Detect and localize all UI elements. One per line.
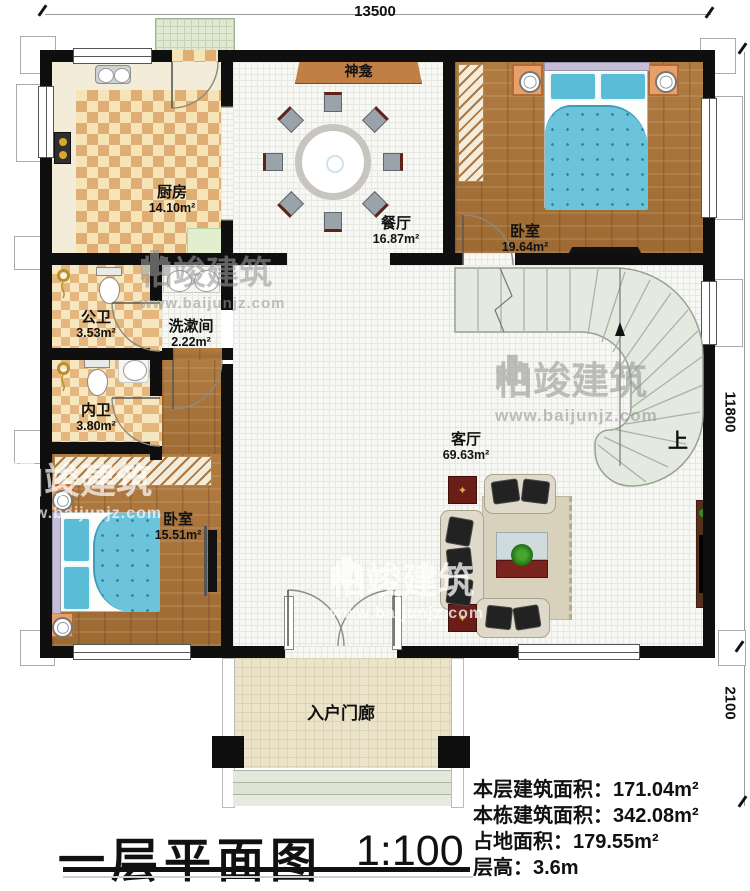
porch-column-strip	[451, 658, 464, 808]
stats-block: 本层建筑面积：171.04m² 本栋建筑面积：342.08m² 占地面积：179…	[473, 777, 699, 881]
kitchen-sink	[95, 65, 131, 84]
washbasin	[167, 270, 192, 292]
room-label-bedroom-top: 卧室19.64m²	[502, 223, 549, 255]
dimension-tick	[738, 795, 748, 807]
porch-step	[233, 794, 451, 806]
washbasin	[194, 270, 219, 292]
porch-door-opening	[285, 646, 397, 658]
shower-head	[57, 269, 70, 282]
chair	[263, 153, 283, 171]
porch-pillar	[438, 736, 470, 768]
dining-living-opening	[287, 253, 390, 265]
stairs-up-label: 上	[668, 431, 688, 454]
stat-line: 本栋建筑面积：342.08m²	[473, 803, 699, 829]
sofa-cushion	[491, 478, 521, 505]
exterior-ledge	[718, 630, 746, 666]
exterior-ledge	[14, 236, 42, 270]
nightstand	[648, 64, 679, 96]
shower-head	[57, 362, 70, 375]
shrine-label: 神龛	[345, 63, 373, 79]
room-label-kitchen: 厨房14.10m²	[149, 184, 196, 216]
sofa-cushion	[485, 605, 513, 631]
wall	[40, 442, 162, 454]
dining-table	[295, 124, 371, 200]
burner	[59, 151, 67, 159]
window	[518, 644, 640, 660]
lamp	[655, 71, 677, 93]
bath-door-opening	[150, 301, 162, 351]
blanket	[93, 513, 160, 612]
sofa-cushion	[445, 576, 474, 606]
window-sill	[715, 279, 743, 347]
lamp	[52, 617, 73, 638]
dimension-right-upper: 11800	[722, 392, 739, 433]
stat-line: 本层建筑面积：171.04m²	[473, 777, 699, 803]
pillow	[62, 565, 91, 611]
sofa-cushion	[512, 604, 541, 631]
toilet-tank	[84, 359, 110, 368]
sofa-cushion	[445, 516, 474, 547]
room-label-public-bath: 公卫3.53m²	[76, 309, 116, 341]
end-table: ✦	[448, 604, 477, 632]
bed	[52, 512, 158, 612]
dimension-top: 13500	[354, 3, 396, 20]
toilet-tank	[96, 267, 122, 276]
pillow	[549, 72, 597, 101]
wall	[221, 253, 233, 310]
sofa-cushion	[521, 478, 551, 504]
private-bath-sink	[118, 356, 149, 383]
exterior-ledge	[14, 430, 42, 464]
window	[38, 86, 54, 158]
door-jamb	[392, 596, 402, 650]
chair	[383, 153, 403, 171]
headboard	[544, 62, 650, 71]
pillow	[62, 517, 91, 563]
window	[701, 98, 717, 218]
washbasin	[123, 360, 147, 381]
wall	[443, 50, 455, 265]
plant	[511, 544, 533, 566]
stove	[54, 132, 71, 164]
sink-basin	[114, 68, 130, 83]
wardrobe	[54, 456, 212, 486]
pillow	[599, 72, 647, 101]
chair	[324, 92, 342, 112]
back-door-planter	[155, 18, 235, 54]
door-jamb	[284, 596, 294, 650]
corridor-floor	[162, 360, 221, 460]
headboard	[52, 512, 61, 614]
room-label-porch: 入户门廊	[307, 704, 375, 724]
bath-door-opening	[150, 396, 162, 446]
window	[73, 644, 191, 660]
dimension-tick	[738, 42, 748, 54]
dimension-right-lower: 2100	[722, 686, 739, 719]
wardrobe	[458, 64, 484, 182]
room-label-dining: 餐厅16.87m²	[373, 215, 420, 247]
nightstand	[512, 64, 543, 96]
washroom-counter	[163, 266, 220, 293]
stat-line: 层高：3.6m	[473, 855, 699, 881]
back-door-opening	[172, 50, 218, 62]
dimension-tick	[705, 6, 715, 18]
lamp	[52, 490, 73, 511]
wall	[221, 364, 233, 658]
sink-basin	[98, 68, 114, 83]
window	[73, 48, 152, 64]
kitchen-dining-opening	[221, 107, 233, 220]
window	[701, 281, 717, 345]
room-label-living: 客厅69.63m²	[443, 431, 490, 463]
burner	[59, 138, 67, 146]
porch-pillar	[212, 736, 244, 768]
tv	[208, 530, 217, 592]
blanket	[545, 105, 648, 210]
lamp	[519, 71, 541, 93]
stat-line: 占地面积：179.55m²	[473, 829, 699, 855]
kitchen-mat	[187, 228, 223, 255]
title-underline-light	[63, 876, 473, 878]
tv-stand	[204, 526, 207, 596]
room-label-private-bath: 内卫3.80m²	[76, 402, 116, 434]
chair	[324, 212, 342, 232]
dimension-line-right	[744, 52, 745, 806]
room-label-bedroom-bottom: 卧室15.51m²	[155, 511, 202, 543]
room-label-washroom: 洗漱间2.22m²	[168, 318, 213, 350]
floorplan-page: { "dimensions": { "top": "13500", "right…	[0, 0, 750, 890]
end-table: ✦	[448, 476, 477, 504]
sheet-title: 一层平面图	[58, 822, 323, 891]
sofa-cushion	[446, 547, 474, 576]
window-sill	[715, 96, 743, 220]
bed	[544, 62, 648, 208]
title-underline	[63, 867, 470, 872]
table-center	[326, 155, 344, 173]
